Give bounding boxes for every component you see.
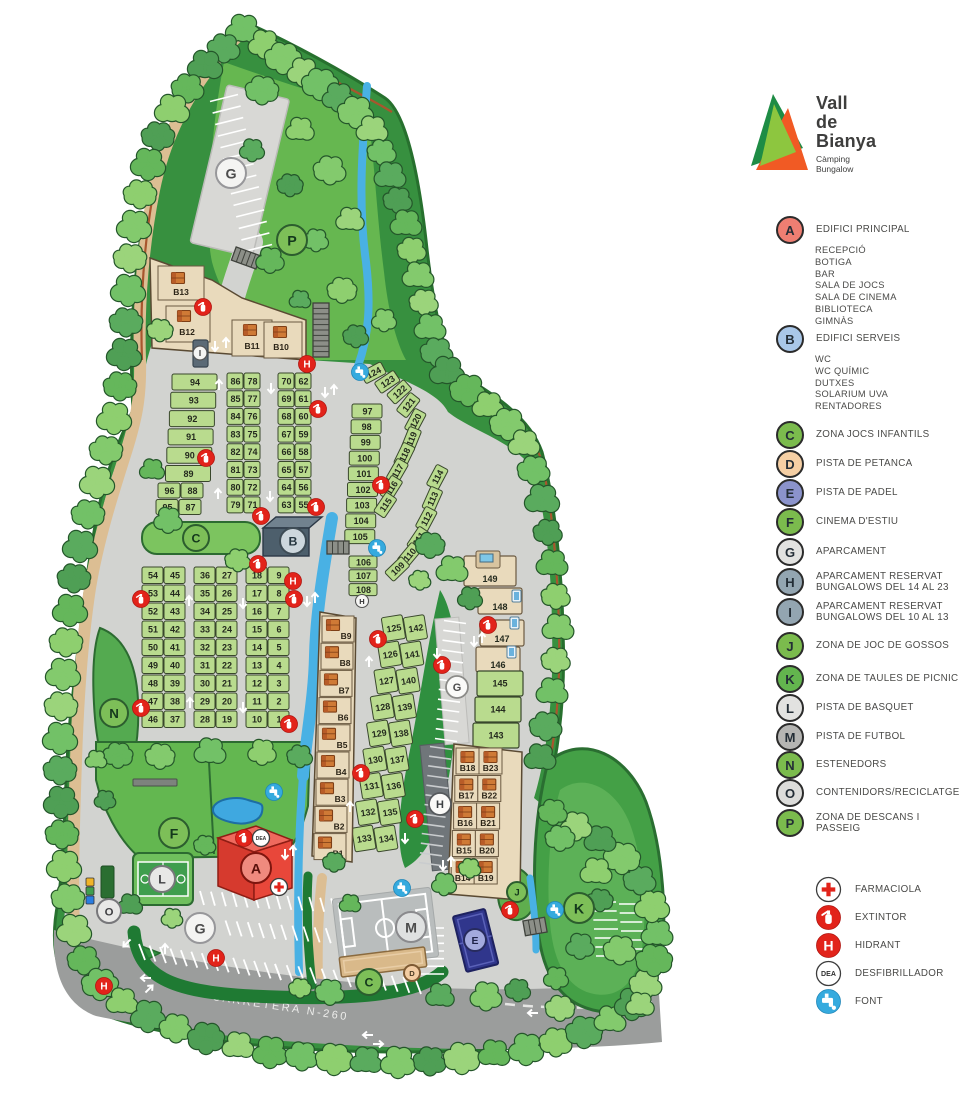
zone-badge-M: M bbox=[776, 723, 804, 751]
symbol-label: EXTINTOR bbox=[855, 912, 907, 923]
svg-text:60: 60 bbox=[298, 412, 308, 422]
svg-text:B19: B19 bbox=[478, 873, 494, 883]
svg-text:76: 76 bbox=[247, 412, 257, 422]
svg-text:148: 148 bbox=[492, 602, 507, 612]
camp-plot: 3 bbox=[268, 675, 289, 692]
extintor-icon bbox=[281, 716, 298, 733]
map-zone-marker-M: M bbox=[396, 912, 426, 942]
svg-text:56: 56 bbox=[298, 483, 308, 493]
hidrant-icon: H bbox=[299, 356, 316, 373]
svg-text:H: H bbox=[823, 938, 833, 954]
svg-text:72: 72 bbox=[247, 483, 257, 493]
camp-plot: 49 bbox=[142, 657, 163, 674]
map-zone-marker-C: C bbox=[183, 525, 209, 551]
camp-plot: 23 bbox=[216, 639, 237, 656]
legend-symbol-row-extintor-icon: EXTINTOR bbox=[815, 904, 907, 931]
zone-badge-L: L bbox=[776, 694, 804, 722]
tree-cluster bbox=[372, 310, 396, 332]
font-icon bbox=[815, 988, 842, 1015]
svg-text:6: 6 bbox=[276, 625, 281, 635]
tree-cluster bbox=[45, 693, 77, 721]
camp-plot: 45 bbox=[164, 567, 185, 584]
svg-text:50: 50 bbox=[148, 643, 158, 653]
svg-text:B8: B8 bbox=[340, 658, 351, 668]
camp-plot: 66 bbox=[278, 444, 294, 460]
svg-text:8: 8 bbox=[276, 589, 281, 599]
svg-text:33: 33 bbox=[200, 625, 210, 635]
map-zone-marker-E: E bbox=[464, 929, 486, 951]
tree-cluster bbox=[336, 208, 363, 230]
svg-text:P: P bbox=[287, 233, 297, 249]
svg-text:99: 99 bbox=[361, 438, 371, 448]
svg-text:15: 15 bbox=[252, 625, 262, 635]
bungalow-icon bbox=[326, 647, 339, 658]
tree-cluster bbox=[53, 595, 87, 626]
map-parking-marker-H: H bbox=[429, 793, 451, 815]
svg-text:57: 57 bbox=[298, 465, 308, 475]
legend-zone-row-F: FCINEMA D'ESTIU bbox=[776, 508, 898, 536]
svg-text:H: H bbox=[212, 954, 219, 965]
svg-text:147: 147 bbox=[494, 634, 509, 644]
tree-cluster bbox=[544, 968, 568, 990]
svg-text:89: 89 bbox=[183, 469, 193, 479]
camp-plot: 98 bbox=[351, 420, 381, 434]
zone-label: CINEMA D'ESTIU bbox=[816, 516, 898, 528]
camp-plot: 25 bbox=[216, 603, 237, 620]
svg-text:11: 11 bbox=[252, 697, 262, 707]
camp-plot: 77 bbox=[244, 391, 260, 407]
extintor-icon bbox=[407, 811, 424, 828]
camp-plot: 137 bbox=[385, 746, 409, 773]
bungalow-icon bbox=[178, 311, 191, 322]
tree-cluster bbox=[626, 993, 653, 1015]
zone-sublabels-B: WC WC QUÍMIC DUTXES SOLARIUM UVA RENTADO… bbox=[815, 354, 888, 413]
map-zone-marker-J: J bbox=[507, 882, 527, 902]
svg-text:41: 41 bbox=[170, 643, 180, 653]
bungalow-icon bbox=[319, 837, 332, 848]
svg-text:42: 42 bbox=[170, 625, 180, 635]
svg-text:2: 2 bbox=[276, 697, 281, 707]
bungalow-icon bbox=[483, 779, 496, 790]
camp-plot: 82 bbox=[227, 444, 243, 460]
camp-plot: 89 bbox=[166, 466, 211, 482]
map-zone-marker-D: D bbox=[404, 965, 420, 981]
camp-plot: 28 bbox=[194, 711, 215, 728]
tree-cluster bbox=[117, 211, 151, 242]
svg-text:28: 28 bbox=[200, 715, 210, 725]
tree-cluster bbox=[131, 149, 165, 180]
svg-text:G: G bbox=[453, 682, 462, 694]
svg-text:G: G bbox=[194, 921, 205, 937]
tree-cluster bbox=[47, 851, 81, 882]
legend-symbol-row-hidrant-icon: HHIDRANT bbox=[815, 932, 901, 959]
logo-subtitle-line1: Càmping bbox=[816, 154, 876, 164]
camp-plot: 138 bbox=[388, 720, 412, 747]
svg-text:H: H bbox=[289, 577, 296, 588]
map-small-marker-H: H bbox=[356, 595, 369, 608]
recycling-bin-icon bbox=[86, 896, 94, 904]
tree-cluster bbox=[80, 467, 114, 498]
svg-text:67: 67 bbox=[281, 429, 291, 439]
camp-plot: 134 bbox=[374, 825, 398, 852]
camp-plot: 15 bbox=[246, 621, 267, 638]
camp-plot: 139 bbox=[392, 693, 416, 720]
svg-text:B6: B6 bbox=[338, 713, 349, 723]
camp-plot: 106 bbox=[349, 556, 377, 568]
bungalow-icon bbox=[323, 728, 336, 739]
camp-plot: 30 bbox=[194, 675, 215, 692]
svg-text:4: 4 bbox=[276, 661, 281, 671]
legend-zone-row-E: EPISTA DE PADEL bbox=[776, 479, 898, 507]
logo-triangles-icon bbox=[748, 92, 810, 174]
bungalow-icon bbox=[457, 834, 470, 845]
bungalow-icon bbox=[322, 756, 335, 767]
camp-plot: 40 bbox=[164, 657, 185, 674]
zone-badge-C: C bbox=[776, 421, 804, 449]
dea-icon: DEA bbox=[815, 960, 842, 987]
svg-text:104: 104 bbox=[354, 516, 369, 526]
dirt-path-right bbox=[318, 878, 322, 988]
extintor-icon bbox=[195, 299, 212, 316]
svg-text:34: 34 bbox=[200, 607, 210, 617]
cinema-screen bbox=[133, 779, 177, 786]
camp-plot: 20 bbox=[216, 693, 237, 710]
camp-plot: 26 bbox=[216, 585, 237, 602]
caravan-icon bbox=[507, 646, 516, 658]
tree-cluster bbox=[155, 95, 189, 122]
svg-text:B13: B13 bbox=[173, 287, 189, 297]
extintor-icon bbox=[480, 617, 497, 634]
camp-plot: 12 bbox=[246, 675, 267, 692]
hidrant-icon: H bbox=[285, 573, 302, 590]
caravan-icon bbox=[512, 590, 521, 602]
recycling-bin-icon bbox=[86, 887, 94, 895]
svg-text:107: 107 bbox=[356, 571, 371, 581]
extintor-icon bbox=[370, 631, 387, 648]
extintor-icon bbox=[236, 830, 253, 847]
camp-plot: 60 bbox=[295, 408, 311, 424]
legend-zone-row-L: LPISTA DE BASQUET bbox=[776, 694, 914, 722]
svg-text:29: 29 bbox=[200, 697, 210, 707]
svg-text:106: 106 bbox=[356, 557, 371, 567]
camp-plot: 73 bbox=[244, 462, 260, 478]
svg-text:105: 105 bbox=[353, 532, 368, 542]
font-icon bbox=[369, 540, 386, 557]
camp-plot: 78 bbox=[244, 373, 260, 389]
svg-text:M: M bbox=[405, 920, 417, 936]
svg-text:94: 94 bbox=[190, 377, 200, 387]
map-zone-marker-A: A bbox=[241, 853, 271, 883]
zone-label: EDIFICI SERVEIS bbox=[816, 333, 900, 345]
zone-badge-K: K bbox=[776, 665, 804, 693]
logo-text: Vall de Bianya Càmping Bungalow bbox=[816, 94, 876, 174]
camp-plot: 32 bbox=[194, 639, 215, 656]
camp-plot: 43 bbox=[164, 603, 185, 620]
zone-badge-P: P bbox=[776, 809, 804, 837]
tree-cluster bbox=[458, 588, 482, 610]
font-icon bbox=[547, 902, 564, 919]
svg-text:B4: B4 bbox=[336, 767, 347, 777]
camp-plot: 24 bbox=[216, 621, 237, 638]
svg-text:30: 30 bbox=[200, 679, 210, 689]
camp-plot: 22 bbox=[216, 657, 237, 674]
extintor-icon bbox=[286, 591, 303, 608]
svg-text:J: J bbox=[514, 888, 519, 899]
tree-cluster bbox=[104, 373, 136, 401]
camp-plot: 87 bbox=[179, 500, 201, 515]
legend-zone-row-D: DPISTA DE PETANCA bbox=[776, 450, 912, 478]
svg-text:47: 47 bbox=[148, 697, 158, 707]
map-parking-marker-I: I bbox=[193, 340, 208, 367]
legend-symbol-row-dea-icon: DEADESFIBRILLADOR bbox=[815, 960, 944, 987]
map-zone-marker-O: O bbox=[97, 899, 121, 923]
svg-text:B20: B20 bbox=[479, 846, 495, 856]
zone-badge-F: F bbox=[776, 508, 804, 536]
zone-label: PISTA DE PADEL bbox=[816, 487, 898, 499]
camp-plot: 79 bbox=[227, 497, 243, 513]
legend-zone-row-J: JZONA DE JOC DE GOSSOS bbox=[776, 632, 949, 660]
tree-cluster bbox=[248, 740, 275, 765]
legend-zone-row-M: MPISTA DE FUTBOL bbox=[776, 723, 905, 751]
svg-text:49: 49 bbox=[148, 661, 158, 671]
extintor-icon bbox=[310, 401, 327, 418]
recycling-bin-icon bbox=[86, 878, 94, 886]
svg-text:7: 7 bbox=[276, 607, 281, 617]
svg-text:A: A bbox=[251, 861, 261, 877]
camp-plot: 127 bbox=[374, 667, 398, 694]
svg-text:K: K bbox=[574, 901, 585, 917]
svg-text:B15: B15 bbox=[456, 846, 472, 856]
tree-cluster bbox=[63, 531, 97, 562]
svg-text:97: 97 bbox=[362, 406, 372, 416]
zone-badge-O: O bbox=[776, 779, 804, 807]
extintor-icon bbox=[133, 700, 150, 717]
legend-zone-row-N: NESTENEDORS bbox=[776, 751, 887, 779]
svg-text:B11: B11 bbox=[244, 341, 259, 351]
camp-plot: 54 bbox=[142, 567, 163, 584]
camp-plot: 63 bbox=[278, 497, 294, 513]
camp-plot: 136 bbox=[381, 772, 405, 799]
bridge bbox=[523, 917, 547, 936]
legend-zone-row-C: CZONA JOCS INFANTILS bbox=[776, 421, 929, 449]
camp-plot: 96 bbox=[158, 483, 180, 498]
camp-plot: 67 bbox=[278, 426, 294, 442]
legend-zone-row-O: OCONTENIDORS/RECICLATGE bbox=[776, 779, 960, 807]
zone-label: ZONA DE TAULES DE PICNIC bbox=[816, 673, 958, 685]
zone-label: PISTA DE PETANCA bbox=[816, 458, 912, 470]
tree-cluster bbox=[142, 123, 174, 151]
legend-symbol-row-font-icon: FONT bbox=[815, 988, 883, 1015]
svg-text:H: H bbox=[359, 597, 364, 606]
extintor-icon bbox=[308, 499, 325, 516]
extintor-icon bbox=[434, 657, 451, 674]
zone-label: ESTENEDORS bbox=[816, 759, 887, 771]
tree-cluster bbox=[43, 723, 77, 754]
svg-text:96: 96 bbox=[164, 486, 174, 496]
extintor-icon bbox=[133, 591, 150, 608]
legend-zone-row-K: KZONA DE TAULES DE PICNIC bbox=[776, 665, 958, 693]
svg-text:35: 35 bbox=[200, 589, 210, 599]
bungalow-icon bbox=[460, 779, 473, 790]
map-zone-marker-P: P bbox=[277, 225, 307, 255]
symbol-label: HIDRANT bbox=[855, 940, 901, 951]
camp-plot: 4 bbox=[268, 657, 289, 674]
svg-text:91: 91 bbox=[186, 432, 196, 442]
tree-cluster bbox=[111, 275, 145, 306]
camp-plot: 39 bbox=[164, 675, 185, 692]
tree-cluster bbox=[97, 403, 131, 434]
hidrant-icon: H bbox=[96, 978, 113, 995]
tree-cluster bbox=[50, 629, 82, 657]
map-zone-marker-G: G bbox=[185, 913, 215, 943]
camp-plot: 144 bbox=[475, 697, 521, 722]
svg-text:25: 25 bbox=[222, 607, 232, 617]
tree-cluster bbox=[86, 751, 106, 767]
svg-text:39: 39 bbox=[170, 679, 180, 689]
camp-plot: 14 bbox=[246, 639, 267, 656]
zone-label: APARCAMENT bbox=[816, 546, 886, 558]
svg-text:46: 46 bbox=[148, 715, 158, 725]
legend-zone-row-I: IAPARCAMENT RESERVATBUNGALOWS DEL 10 AL … bbox=[776, 598, 949, 626]
camp-plot: 86 bbox=[227, 373, 243, 389]
tree-cluster bbox=[58, 565, 90, 593]
symbol-label: DESFIBRILLADOR bbox=[855, 968, 944, 979]
extintor-icon bbox=[250, 556, 267, 573]
svg-text:B22: B22 bbox=[482, 791, 498, 801]
svg-text:B21: B21 bbox=[480, 818, 496, 828]
tree-cluster bbox=[289, 979, 311, 998]
svg-text:43: 43 bbox=[170, 607, 180, 617]
camp-plot: 41 bbox=[164, 639, 185, 656]
bungalow-icon bbox=[459, 807, 472, 818]
tree-cluster bbox=[46, 821, 78, 849]
camp-plot: 44 bbox=[164, 585, 185, 602]
svg-text:E: E bbox=[472, 936, 479, 947]
camp-plot: 72 bbox=[244, 479, 260, 495]
map-zone-marker-C: C bbox=[356, 969, 382, 995]
extintor-icon bbox=[253, 508, 270, 525]
camp-plot: 83 bbox=[227, 426, 243, 442]
camp-plot: 75 bbox=[244, 426, 260, 442]
svg-text:19: 19 bbox=[222, 715, 232, 725]
svg-text:10: 10 bbox=[252, 715, 262, 725]
camp-plot: 7 bbox=[268, 603, 289, 620]
svg-text:87: 87 bbox=[185, 502, 195, 512]
camp-plot: 84 bbox=[227, 408, 243, 424]
svg-text:C: C bbox=[192, 532, 201, 546]
hidrant-icon: H bbox=[815, 932, 842, 959]
campsite-map-page: CARRETERA N-2609493929190899688958786788… bbox=[0, 0, 967, 1094]
svg-text:20: 20 bbox=[222, 697, 232, 707]
svg-text:B3: B3 bbox=[335, 794, 346, 804]
tree-cluster bbox=[46, 659, 80, 690]
svg-text:65: 65 bbox=[281, 465, 291, 475]
map-zone-marker-L: L bbox=[149, 866, 175, 892]
svg-text:82: 82 bbox=[230, 447, 240, 457]
bungalow-icon bbox=[172, 273, 185, 284]
extintor-icon bbox=[815, 904, 842, 931]
legend-zone-row-G: GAPARCAMENT bbox=[776, 538, 886, 566]
camp-plot: 35 bbox=[194, 585, 215, 602]
tree-cluster bbox=[107, 339, 141, 370]
camp-plot: 6 bbox=[268, 621, 289, 638]
camp-plot: 51 bbox=[142, 621, 163, 638]
camp-plot: 2 bbox=[268, 693, 289, 710]
svg-text:36: 36 bbox=[200, 571, 210, 581]
tree-cluster bbox=[188, 51, 222, 78]
svg-text:149: 149 bbox=[482, 574, 497, 584]
svg-text:44: 44 bbox=[170, 589, 180, 599]
svg-text:C: C bbox=[365, 976, 374, 990]
camp-plot: 16 bbox=[246, 603, 267, 620]
camp-plot: 68 bbox=[278, 408, 294, 424]
camp-plot: 80 bbox=[227, 479, 243, 495]
bungalow-icon bbox=[327, 620, 340, 631]
legend-zone-row-B: BEDIFICI SERVEIS bbox=[776, 325, 900, 353]
svg-text:145: 145 bbox=[492, 679, 507, 689]
svg-text:N: N bbox=[109, 706, 119, 721]
tree-cluster bbox=[566, 934, 593, 959]
camp-plot: 5 bbox=[268, 639, 289, 656]
svg-text:51: 51 bbox=[148, 625, 158, 635]
camp-plot: 103 bbox=[347, 498, 377, 512]
camp-plot: 65 bbox=[278, 462, 294, 478]
map-zone-marker-N: N bbox=[100, 699, 128, 727]
camp-plot: 17 bbox=[246, 585, 267, 602]
tree-cluster bbox=[72, 501, 104, 529]
svg-text:DEA: DEA bbox=[821, 971, 836, 978]
camp-plot: 19 bbox=[216, 711, 237, 728]
svg-text:B7: B7 bbox=[339, 685, 350, 695]
svg-text:78: 78 bbox=[247, 376, 257, 386]
zone-label: EDIFICI PRINCIPAL bbox=[816, 224, 910, 236]
zone-badge-B: B bbox=[776, 325, 804, 353]
camp-plot: 140 bbox=[396, 667, 420, 694]
tree-cluster bbox=[240, 140, 264, 162]
camp-plot: 141 bbox=[399, 641, 423, 668]
camp-plot: 97 bbox=[352, 404, 382, 418]
svg-text:38: 38 bbox=[170, 697, 180, 707]
svg-text:31: 31 bbox=[200, 661, 210, 671]
svg-text:52: 52 bbox=[148, 607, 158, 617]
camp-plot: 101 bbox=[348, 467, 378, 481]
svg-text:45: 45 bbox=[170, 571, 180, 581]
font-icon bbox=[394, 880, 411, 897]
bungalow-icon bbox=[324, 701, 337, 712]
svg-text:17: 17 bbox=[252, 589, 262, 599]
legend-symbol-row-farmaciola-icon: FARMACIOLA bbox=[815, 876, 921, 903]
map-zone-marker-K: K bbox=[564, 893, 594, 923]
tree-cluster bbox=[95, 791, 115, 810]
camp-plot: 143 bbox=[473, 723, 519, 748]
camp-plot: 92 bbox=[169, 411, 214, 427]
tree-cluster bbox=[162, 909, 182, 928]
camp-plot: 133 bbox=[352, 825, 376, 852]
camp-plot: 74 bbox=[244, 444, 260, 460]
svg-text:12: 12 bbox=[252, 679, 262, 689]
tree-cluster bbox=[286, 118, 313, 140]
svg-text:26: 26 bbox=[222, 589, 232, 599]
svg-text:146: 146 bbox=[490, 660, 505, 670]
svg-text:70: 70 bbox=[281, 376, 291, 386]
svg-text:77: 77 bbox=[247, 394, 257, 404]
camp-plot: 69 bbox=[278, 391, 294, 407]
tree-cluster bbox=[426, 984, 453, 1006]
zone-label: CONTENIDORS/RECICLATGE bbox=[816, 787, 960, 799]
svg-text:B10: B10 bbox=[273, 342, 289, 352]
symbol-label: FONT bbox=[855, 996, 883, 1007]
camp-plot: 62 bbox=[295, 373, 311, 389]
